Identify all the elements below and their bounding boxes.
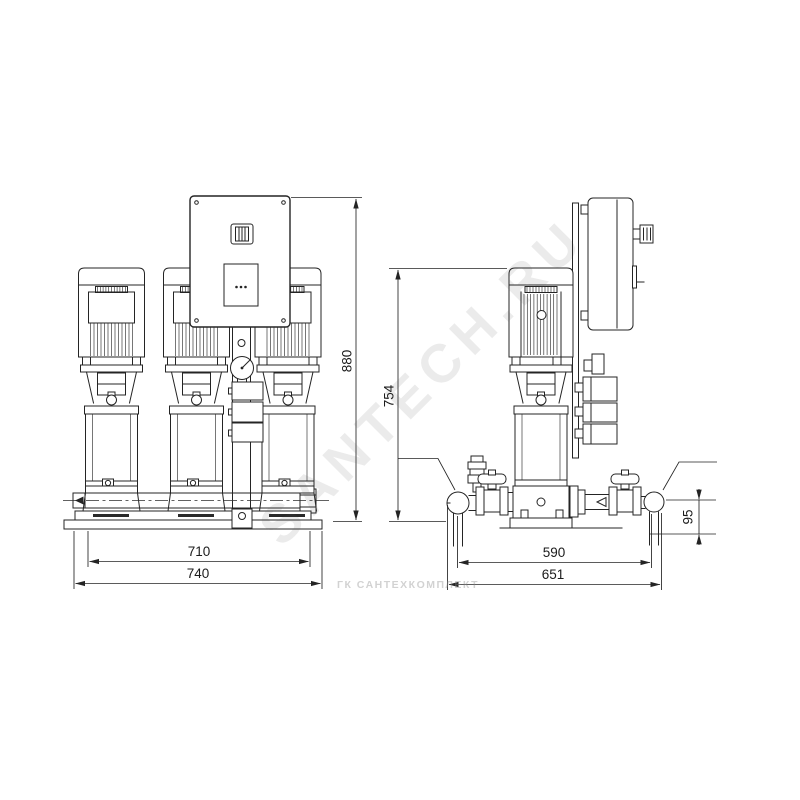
pump-base-plate <box>510 518 572 528</box>
cable-gland <box>231 224 253 244</box>
dim-side-inner-width: 590 <box>543 545 566 560</box>
display-panel <box>224 264 258 306</box>
control-cabinet <box>190 196 290 327</box>
lifting-eye-icon <box>537 311 546 320</box>
dim-front-inner-width: 710 <box>188 544 211 559</box>
junction-boxes-front <box>229 382 264 442</box>
ball-valve-right <box>609 470 641 515</box>
leader-left <box>398 459 455 491</box>
flow-arrow-icon <box>597 498 606 507</box>
dim-side-overall-width: 651 <box>542 567 565 582</box>
ball-valve-left <box>476 470 508 515</box>
pipe-legs-right <box>650 512 659 545</box>
flange-right <box>644 492 664 512</box>
control-cabinet-side <box>581 198 653 330</box>
technical-drawing: 880 710 740 <box>0 0 800 800</box>
dim-side-pipe-axis-height: 95 <box>681 509 696 524</box>
junction-boxes-side <box>575 354 617 444</box>
pump-side <box>510 365 572 528</box>
drawing-canvas: 880 710 740 <box>0 0 800 800</box>
front-view: 880 710 740 <box>63 196 362 589</box>
piping-left <box>447 456 513 546</box>
dim-front-overall-width: 740 <box>187 566 210 581</box>
footer-watermark-text: ГК САНТЕХКОМПЛЕКТ <box>337 579 479 591</box>
door-hinge <box>633 266 637 288</box>
cable-gland-side <box>633 225 653 243</box>
dim-front-height: 880 <box>340 350 355 373</box>
pump-1 <box>79 268 145 511</box>
center-pedestal <box>232 509 252 528</box>
leader-right <box>663 462 717 490</box>
pipe-legs-left <box>454 513 463 546</box>
